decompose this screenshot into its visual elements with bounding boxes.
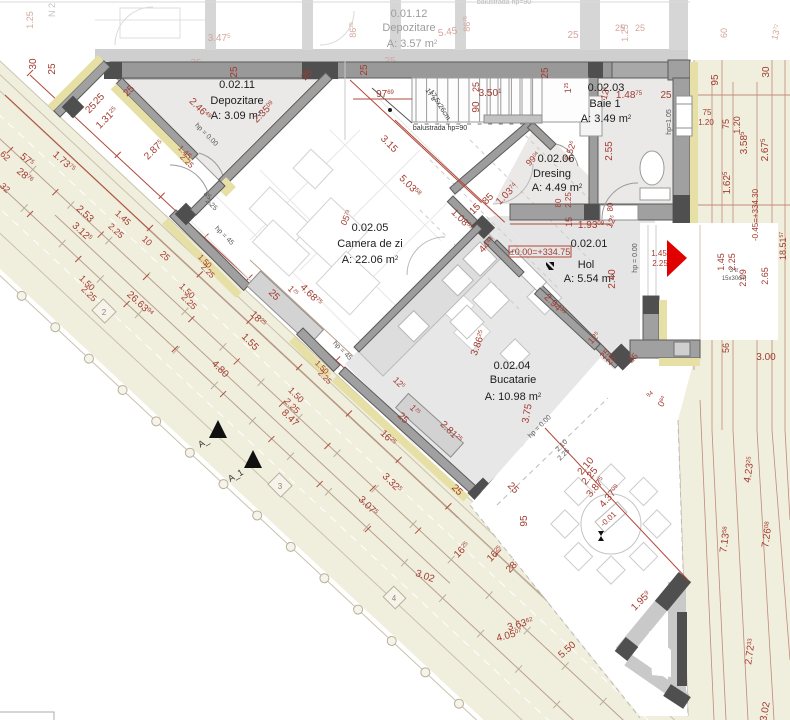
svg-text:80: 80: [606, 202, 615, 211]
svg-text:60: 60: [719, 28, 729, 38]
svg-text:-0.45=+334.30: -0.45=+334.30: [751, 188, 760, 241]
svg-text:2: 2: [102, 308, 107, 317]
svg-text:30: 30: [761, 66, 772, 78]
svg-text:A: 3.57 m2: A: 3.57 m2: [387, 38, 438, 50]
svg-text:3.00: 3.00: [756, 352, 776, 363]
svg-text:1.25: 1.25: [620, 24, 630, 42]
svg-text:0.02.05: 0.02.05: [352, 222, 389, 234]
svg-text:Camera de zi: Camera de zi: [337, 238, 402, 250]
svg-text:1.25: 1.25: [25, 11, 35, 29]
svg-text:25: 25: [47, 63, 58, 75]
svg-text:±0.00=+334.75: ±0.00=+334.75: [510, 247, 571, 257]
svg-text:25: 25: [540, 67, 551, 79]
svg-text:Hol: Hol: [578, 259, 595, 271]
svg-text:hp=1.05: hp=1.05: [666, 109, 673, 135]
svg-text:balustrada hp=90: balustrada hp=90: [413, 125, 467, 132]
svg-text:Dresing: Dresing: [533, 168, 571, 180]
svg-text:30: 30: [28, 58, 39, 70]
svg-text:15: 15: [564, 217, 574, 227]
svg-text:A: 10.98 m2: A: 10.98 m2: [485, 391, 542, 403]
svg-text:95: 95: [519, 515, 530, 527]
svg-text:75: 75: [721, 119, 731, 129]
svg-text:25: 25: [359, 64, 370, 76]
svg-text:4: 4: [392, 594, 397, 603]
svg-text:15x30cm: 15x30cm: [722, 276, 746, 282]
svg-text:1.45: 1.45: [651, 249, 667, 258]
svg-text:25: 25: [660, 90, 672, 101]
svg-text:3 tr: 3 tr: [730, 268, 739, 274]
svg-text:Bucatarie: Bucatarie: [490, 374, 536, 386]
svg-text:Depozitare: Depozitare: [382, 22, 435, 34]
svg-text:balustrada hp=90: balustrada hp=90: [477, 0, 531, 6]
svg-text:25: 25: [471, 82, 481, 92]
svg-text:2.40: 2.40: [607, 269, 618, 289]
svg-text:1.20: 1.20: [732, 116, 742, 134]
svg-text:25: 25: [567, 30, 579, 41]
svg-text:2.55: 2.55: [604, 141, 615, 161]
svg-text:hp = 0.00: hp = 0.00: [632, 243, 639, 272]
svg-text:2.65: 2.65: [760, 267, 770, 285]
svg-text:3: 3: [278, 482, 283, 491]
svg-text:A: 22.06 m2: A: 22.06 m2: [342, 254, 399, 266]
svg-text:25: 25: [635, 23, 645, 33]
svg-text:2.25: 2.25: [564, 192, 573, 208]
svg-text:Depozitare: Depozitare: [210, 95, 263, 107]
svg-text:0.02.04: 0.02.04: [494, 360, 531, 372]
svg-text:0.01.12: 0.01.12: [391, 8, 428, 20]
svg-text:80: 80: [554, 198, 563, 207]
svg-text:1.45: 1.45: [716, 253, 726, 271]
svg-text:1.20: 1.20: [698, 118, 714, 127]
svg-text:0.02.01: 0.02.01: [571, 238, 608, 250]
svg-text:A: 3.49 m2: A: 3.49 m2: [581, 113, 632, 125]
svg-text:A: 4.49 m2: A: 4.49 m2: [532, 182, 583, 194]
svg-text:56: 56: [721, 343, 731, 353]
svg-text:90: 90: [471, 101, 482, 113]
svg-text:0.02.11: 0.02.11: [219, 79, 255, 91]
svg-text:25: 25: [229, 66, 240, 78]
svg-text:95: 95: [710, 74, 721, 86]
svg-text:2.25: 2.25: [652, 259, 668, 268]
svg-text:75: 75: [703, 108, 712, 117]
svg-text:N 2: N 2: [47, 3, 57, 17]
